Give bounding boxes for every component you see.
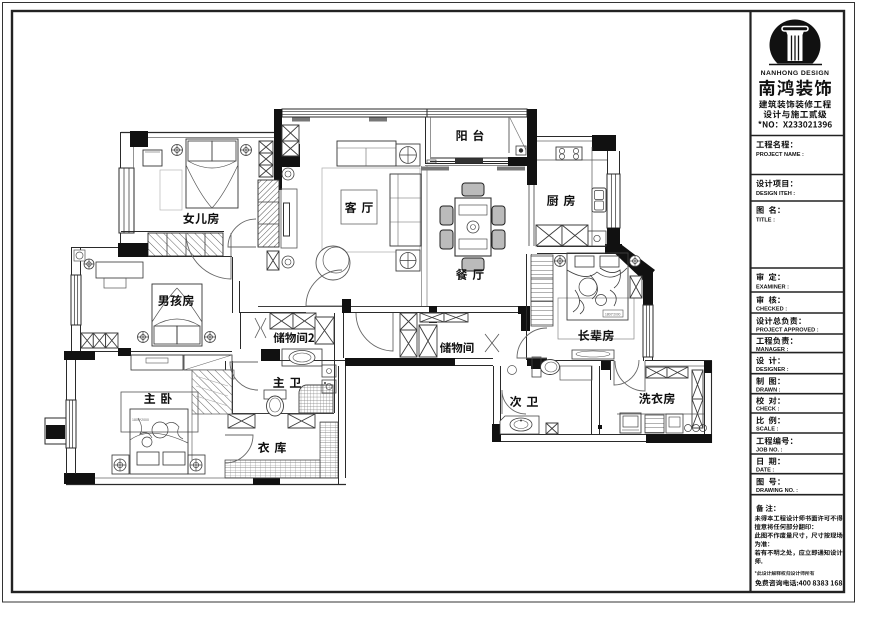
svg-text:PROJECT APPROVED :: PROJECT APPROVED : bbox=[756, 327, 819, 333]
svg-text:DATE :: DATE : bbox=[756, 467, 774, 473]
svg-text:CHECK :: CHECK : bbox=[756, 407, 779, 413]
svg-text:TITLE :: TITLE : bbox=[756, 217, 775, 223]
svg-text:EXAMINER :: EXAMINER : bbox=[756, 284, 789, 290]
svg-text:NANHONG DESIGN: NANHONG DESIGN bbox=[761, 70, 830, 77]
svg-text:DRAWING NO. :: DRAWING NO. : bbox=[756, 488, 798, 494]
svg-text:JOB NO. :: JOB NO. : bbox=[756, 447, 783, 453]
svg-text:DESIGNER :: DESIGNER : bbox=[756, 367, 789, 373]
svg-text:SCALE :: SCALE : bbox=[756, 427, 779, 433]
svg-text:DESIGN ITEH :: DESIGN ITEH : bbox=[756, 191, 795, 197]
svg-text:PROJECT NAME :: PROJECT NAME : bbox=[756, 152, 804, 158]
svg-text:DRAWN :: DRAWN : bbox=[756, 387, 781, 393]
svg-text:1800*2000: 1800*2000 bbox=[605, 313, 621, 317]
svg-text:CHECKED :: CHECKED : bbox=[756, 306, 787, 312]
svg-text:1800*2000: 1800*2000 bbox=[132, 418, 149, 422]
